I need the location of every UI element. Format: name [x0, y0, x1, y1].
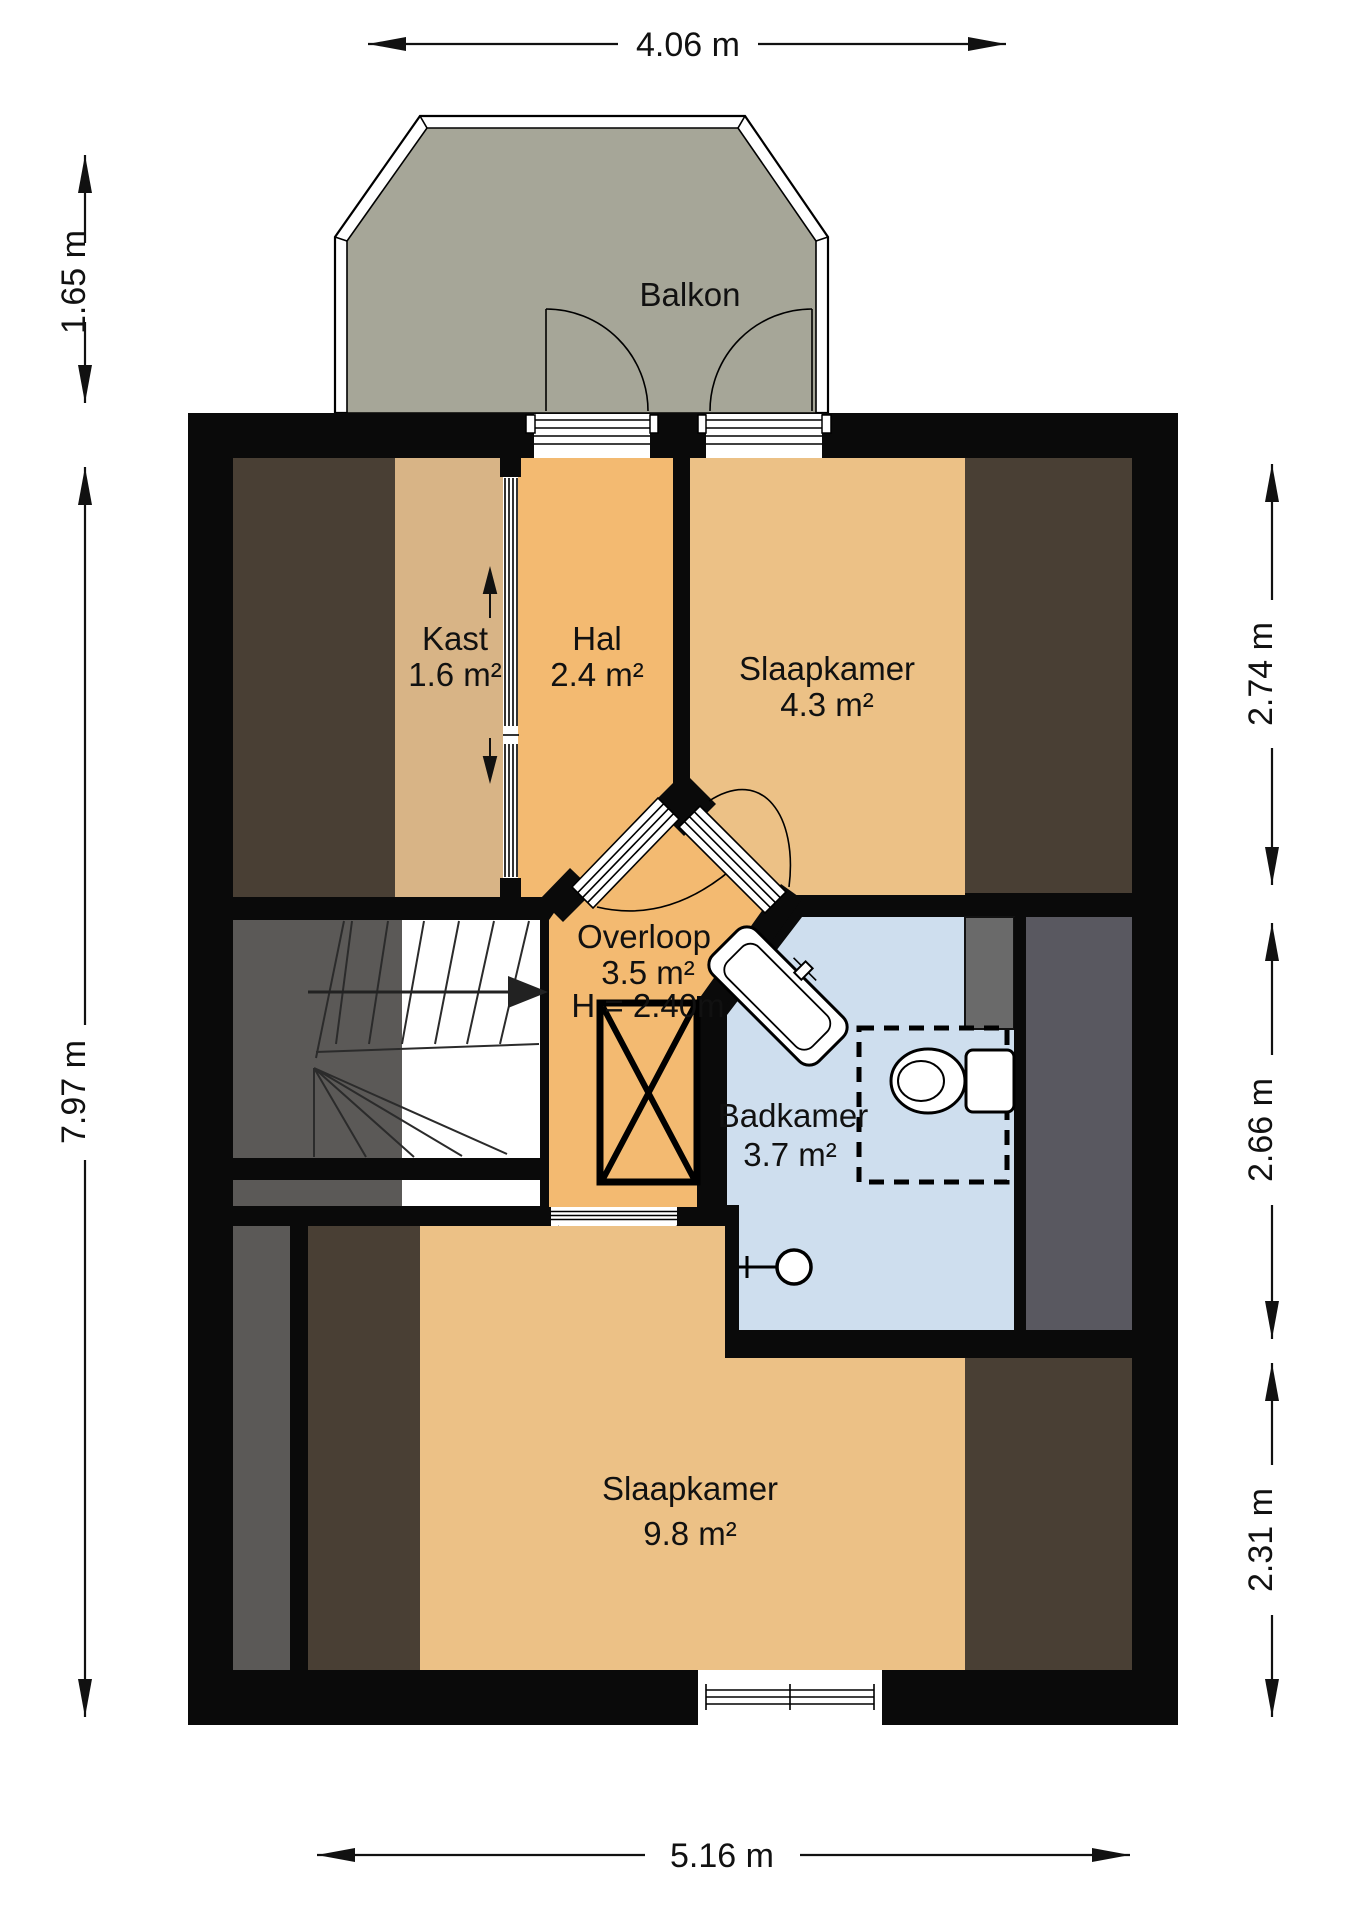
slope-strip-top-right [965, 458, 1132, 893]
shaft [600, 1003, 697, 1182]
overloop-height: H = 2.40m [571, 987, 724, 1024]
badkamer-duct [965, 917, 1014, 1029]
overloop-area: 3.5 m² [601, 954, 695, 991]
balcony-door-opening-left [526, 414, 658, 458]
kast-label: Kast [422, 620, 488, 657]
balcony: Balkon [335, 116, 828, 413]
wall-badkamer-right [1014, 917, 1026, 1344]
balcony-floor [347, 128, 816, 413]
dimension-top: 4.06 m [368, 26, 1006, 64]
knee-wall [290, 1226, 308, 1670]
hal-label: Hal [572, 620, 622, 657]
svg-text:7.97 m: 7.97 m [55, 1040, 93, 1144]
badkamer-label: Badkamer [718, 1097, 868, 1134]
slope-strip-top-left [233, 458, 395, 897]
badkamer-area: 3.7 m² [743, 1136, 837, 1173]
room-slaapkamer-achter-right [725, 1358, 965, 1670]
slaapkamer-achter-label: Slaapkamer [602, 1470, 778, 1507]
floorplan-drawing: Balkon [0, 0, 1358, 1920]
kast-partition [500, 458, 521, 897]
balcony-label: Balkon [640, 276, 741, 313]
room-slaapkamer-achter [420, 1226, 725, 1670]
slope-strip-bottom-right [965, 1358, 1132, 1670]
slaapkamer-achter-area: 9.8 m² [643, 1515, 737, 1552]
stair-treads-area [402, 920, 540, 1158]
slaapkamer-voor-area: 4.3 m² [780, 686, 874, 723]
hal-area: 2.4 m² [550, 656, 644, 693]
dimension-right-bottom: 2.31 m [1242, 1363, 1280, 1717]
stair-slope-sliver [233, 1180, 402, 1206]
wall-badkamer-left-lower [725, 1205, 739, 1330]
stair-slope-overlay [233, 920, 402, 1158]
toilet [891, 1049, 1014, 1113]
overloop-label: Overloop [577, 918, 711, 955]
svg-text:2.31 m: 2.31 m [1242, 1488, 1280, 1592]
slaapkamer-voor-label: Slaapkamer [739, 650, 915, 687]
stair-white-sliver [402, 1180, 540, 1206]
kast-area: 1.6 m² [408, 656, 502, 693]
wall-badkamer-bottom [725, 1330, 1132, 1358]
slope-strip-bottom-left-brown [308, 1226, 420, 1670]
slope-strip-bottom-left-gray [233, 1226, 290, 1670]
dimension-right-middle: 2.66 m [1242, 923, 1280, 1339]
svg-text:2.66 m: 2.66 m [1242, 1078, 1280, 1182]
slope-strip-badkamer-right [1026, 917, 1132, 1344]
balcony-door-opening-right [698, 414, 831, 458]
svg-text:4.06 m: 4.06 m [636, 26, 740, 64]
floorplan-page: Balkon [0, 0, 1358, 1920]
window-bottom [698, 1670, 882, 1725]
svg-text:5.16 m: 5.16 m [670, 1837, 774, 1875]
svg-text:2.74 m: 2.74 m [1242, 622, 1280, 726]
dimension-bottom: 5.16 m [317, 1837, 1130, 1875]
dimension-right-top: 2.74 m [1242, 464, 1280, 885]
dimension-balcony-depth: 1.65 m [55, 155, 93, 403]
svg-text:1.65 m: 1.65 m [55, 230, 93, 334]
dimension-left: 7.97 m [55, 467, 93, 1717]
